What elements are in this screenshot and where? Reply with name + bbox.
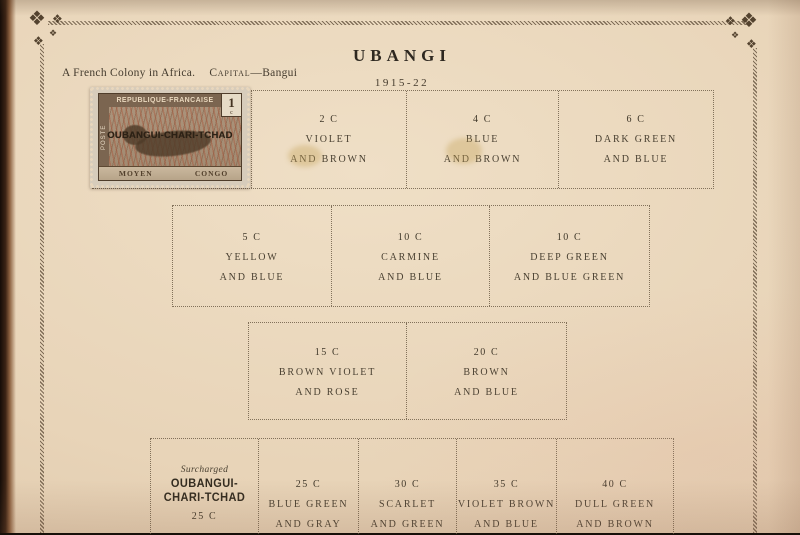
corner-ornament-icon: ❖ <box>746 38 757 50</box>
hinge-stain <box>288 145 322 167</box>
colony-line: A French Colony in Africa. <box>62 67 195 79</box>
stamp-color-line: SCARLET <box>359 495 456 515</box>
stamp-cell-surcharged: Surcharged OUBANGUI- CHARI-TCHAD 25 C <box>151 439 258 534</box>
stamp-color-line: VIOLET BROWN <box>457 495 556 515</box>
stamp-color-line: AND BROWN <box>557 515 673 535</box>
stamp-country-banner: REPUBLIQUE-FRANCAISE <box>109 94 221 107</box>
stamp-color-line: AND BROWN <box>252 150 406 170</box>
stamp-value: 2 C <box>252 110 406 130</box>
stamp-value: 25 C <box>259 475 358 495</box>
stamp-color-line: YELLOW <box>173 248 331 268</box>
stamp-color-line: AND BLUE <box>457 515 556 535</box>
stamp-value: 40 C <box>557 475 673 495</box>
ribbon-text-right: CONGO <box>195 167 228 180</box>
stamp-color-line: AND GREEN <box>359 515 456 535</box>
stamp-color-line: BROWN VIOLET <box>249 363 406 383</box>
corner-ornament-icon: ❖ <box>49 30 57 39</box>
stamp-value: 20 C <box>407 343 566 363</box>
stamp-color-line: DEEP GREEN <box>490 248 649 268</box>
stamp-value: 6 C <box>559 110 713 130</box>
ribbon-text-left: MOYEN <box>119 167 153 180</box>
border-right-line <box>753 48 757 533</box>
stamp-color-line: AND GRAY <box>259 515 358 535</box>
surcharged-label: Surcharged <box>151 463 258 477</box>
surcharge-overprint-line: OUBANGUI- <box>151 477 258 492</box>
album-photo: { "colors": { "page_background": "#e9d7b… <box>0 0 800 533</box>
stamp-value: 30 C <box>359 475 456 495</box>
surcharge-overprint-line: CHARI-TCHAD <box>151 491 258 506</box>
mounted-stamp: POSTE REPUBLIQUE-FRANCAISE 1 c MOYEN CON… <box>90 87 250 188</box>
stamp-row-4: Surcharged OUBANGUI- CHARI-TCHAD 25 C 25… <box>150 438 674 534</box>
book-spine-edge <box>0 0 16 533</box>
stamp-value: 5 C <box>173 228 331 248</box>
stamp-cell: 35 C VIOLET BROWN AND BLUE <box>456 439 556 534</box>
stamp-value: 10 C <box>490 228 649 248</box>
stamp-cell: 5 C YELLOW AND BLUE <box>173 206 331 306</box>
corner-ornament-icon: ❖ <box>725 15 736 27</box>
border-top-line <box>48 21 748 25</box>
stamp-value: 4 C <box>407 110 558 130</box>
stamp-value: 35 C <box>457 475 556 495</box>
stamp-cell: 30 C SCARLET AND GREEN <box>358 439 456 534</box>
stamp-value: 10 C <box>332 228 489 248</box>
corner-ornament-icon: ❖ <box>28 8 46 28</box>
stamp-ribbon: MOYEN CONGO <box>99 166 241 180</box>
stamp-color-line: BROWN <box>407 363 566 383</box>
stamp-cell: 2 C VIOLET AND BROWN <box>251 91 406 188</box>
stamp-color-line: BLUE GREEN <box>259 495 358 515</box>
corner-ornament-icon: ❖ <box>740 10 758 30</box>
stamp-color-line: AND BLUE <box>407 383 566 403</box>
stamp-color-line: VIOLET <box>252 130 406 150</box>
stamp-color-line: AND BLUE <box>559 150 713 170</box>
stamp-color-line: DARK GREEN <box>559 130 713 150</box>
perforation-edge <box>90 184 250 189</box>
stamp-overprint: OUBANGUI-CHARI-TCHAD <box>92 130 248 141</box>
stamp-color-line: AND BROWN <box>407 150 558 170</box>
stamp-cell: 4 C BLUE AND BROWN <box>406 91 558 188</box>
perforation-edge <box>90 86 250 91</box>
stamp-row-2: 5 C YELLOW AND BLUE 10 C CARMINE AND BLU… <box>172 205 650 307</box>
stamp-cell: 20 C BROWN AND BLUE <box>406 323 566 419</box>
stamp-row-3: 15 C BROWN VIOLET AND ROSE 20 C BROWN AN… <box>248 322 567 420</box>
stamp-color-line: CARMINE <box>332 248 489 268</box>
stamp-cell: 6 C DARK GREEN AND BLUE <box>558 91 713 188</box>
stamp-color-line: DULL GREEN <box>557 495 673 515</box>
stamp-cell: 40 C DULL GREEN AND BROWN <box>556 439 673 534</box>
stamp-value: 15 C <box>249 343 406 363</box>
stamp-color-line: AND BLUE GREEN <box>490 268 649 288</box>
stamp-cell: 10 C CARMINE AND BLUE <box>331 206 489 306</box>
stamp-color-line: BLUE <box>407 130 558 150</box>
issue-years: 1915-22 <box>252 77 552 89</box>
stamp-value: 25 C <box>151 508 258 526</box>
border-left-line <box>40 44 44 533</box>
corner-ornament-icon: ❖ <box>52 13 63 25</box>
stamp-cell: 10 C DEEP GREEN AND BLUE GREEN <box>489 206 649 306</box>
corner-ornament-icon: ❖ <box>731 32 739 41</box>
page-title: UBANGI <box>252 46 552 66</box>
stamp-design: POSTE REPUBLIQUE-FRANCAISE 1 c MOYEN CON… <box>98 93 242 181</box>
stamp-color-line: AND BLUE <box>173 268 331 288</box>
hinge-stain <box>446 138 482 164</box>
stamp-cell: 25 C BLUE GREEN AND GRAY <box>258 439 358 534</box>
stamp-color-line: AND BLUE <box>332 268 489 288</box>
stamp-color-line: AND ROSE <box>249 383 406 403</box>
stamp-cell: 15 C BROWN VIOLET AND ROSE <box>249 323 406 419</box>
corner-ornament-icon: ❖ <box>33 35 44 47</box>
capital-label: Capital <box>209 67 250 79</box>
